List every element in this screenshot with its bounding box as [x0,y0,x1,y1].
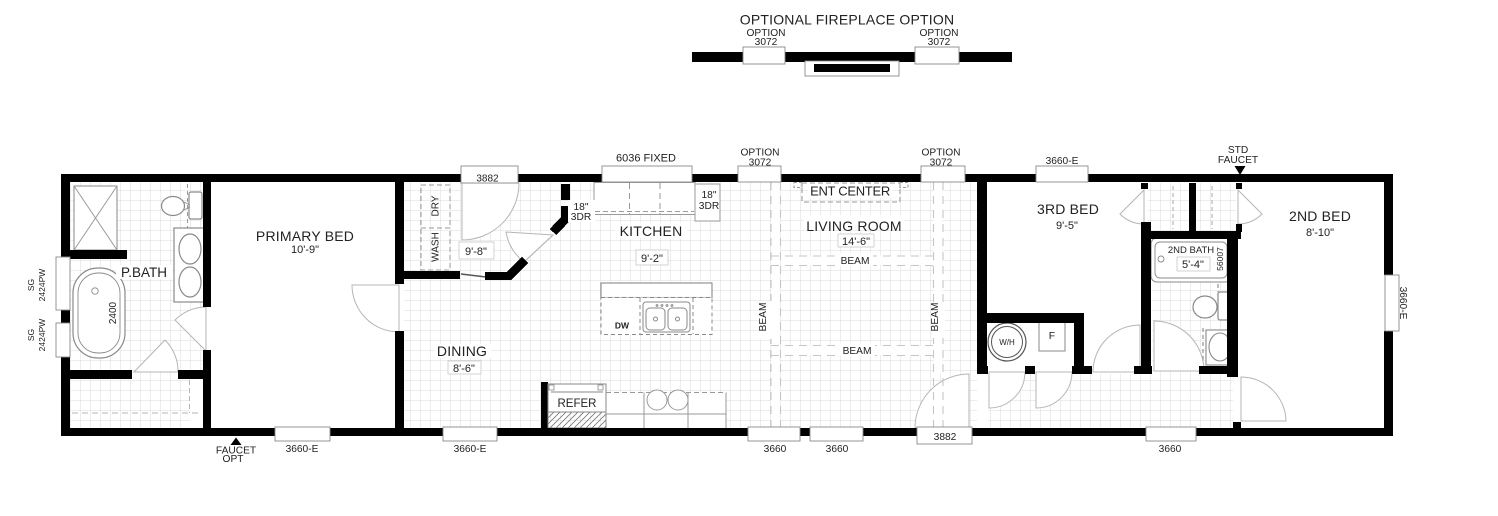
svg-text:3DR: 3DR [571,212,591,223]
svg-text:9'-8": 9'-8" [465,246,487,258]
svg-text:OPT: OPT [223,454,244,465]
svg-text:8'-6": 8'-6" [453,363,475,375]
svg-text:SG: SG [26,279,36,291]
svg-text:BEAM: BEAM [841,256,870,267]
svg-text:ENT CENTER: ENT CENTER [810,184,890,199]
svg-text:18": 18" [702,190,717,201]
svg-text:BEAM: BEAM [758,303,769,332]
svg-text:DRY: DRY [431,195,442,216]
svg-text:3072: 3072 [928,37,951,48]
svg-text:BEAM: BEAM [843,346,872,357]
svg-text:2ND BED: 2ND BED [1289,208,1351,224]
svg-text:3RD BED: 3RD BED [1037,201,1099,217]
svg-text:3660-E: 3660-E [1397,287,1408,320]
svg-text:3072: 3072 [749,158,772,169]
svg-text:PRIMARY BED: PRIMARY BED [256,228,354,244]
svg-text:DW: DW [615,321,630,331]
svg-text:3072: 3072 [755,37,778,48]
svg-text:WASH: WASH [431,232,442,262]
svg-text:2424PW: 2424PW [37,269,47,302]
svg-text:14'-6": 14'-6" [842,236,870,248]
svg-text:LIVING ROOM: LIVING ROOM [806,218,902,234]
svg-text:W/H: W/H [999,338,1015,347]
svg-text:3660-E: 3660-E [286,444,319,455]
svg-text:DINING: DINING [437,343,487,359]
svg-text:2424PW: 2424PW [37,319,47,352]
svg-text:3072: 3072 [930,158,953,169]
svg-text:9'-5": 9'-5" [1056,220,1078,232]
svg-text:3660-E: 3660-E [454,444,487,455]
svg-text:REFER: REFER [558,398,597,410]
svg-text:OPTIONAL FIREPLACE OPTION: OPTIONAL FIREPLACE OPTION [740,12,955,28]
svg-text:2400: 2400 [108,301,119,324]
svg-text:3660-E: 3660-E [1046,156,1079,167]
svg-text:56007: 56007 [1215,247,1225,271]
svg-text:F: F [1049,330,1055,342]
svg-text:10'-9": 10'-9" [291,244,319,256]
svg-text:5'-4": 5'-4" [1182,259,1204,271]
svg-text:8'-10": 8'-10" [1306,227,1334,239]
svg-text:FAUCET: FAUCET [1218,155,1258,166]
svg-text:P.BATH: P.BATH [121,265,167,280]
svg-text:SG: SG [26,329,36,341]
svg-text:2ND BATH: 2ND BATH [1168,245,1214,256]
svg-text:BEAM: BEAM [930,303,941,332]
svg-text:3DR: 3DR [699,201,719,212]
svg-text:3882: 3882 [934,432,957,443]
svg-text:3660: 3660 [1159,444,1182,455]
svg-text:3660: 3660 [764,444,787,455]
svg-text:9'-2": 9'-2" [641,253,663,265]
svg-text:6036 FIXED: 6036 FIXED [616,153,676,165]
svg-text:3882: 3882 [476,174,499,185]
svg-text:3660: 3660 [826,444,849,455]
svg-text:KITCHEN: KITCHEN [620,223,683,239]
